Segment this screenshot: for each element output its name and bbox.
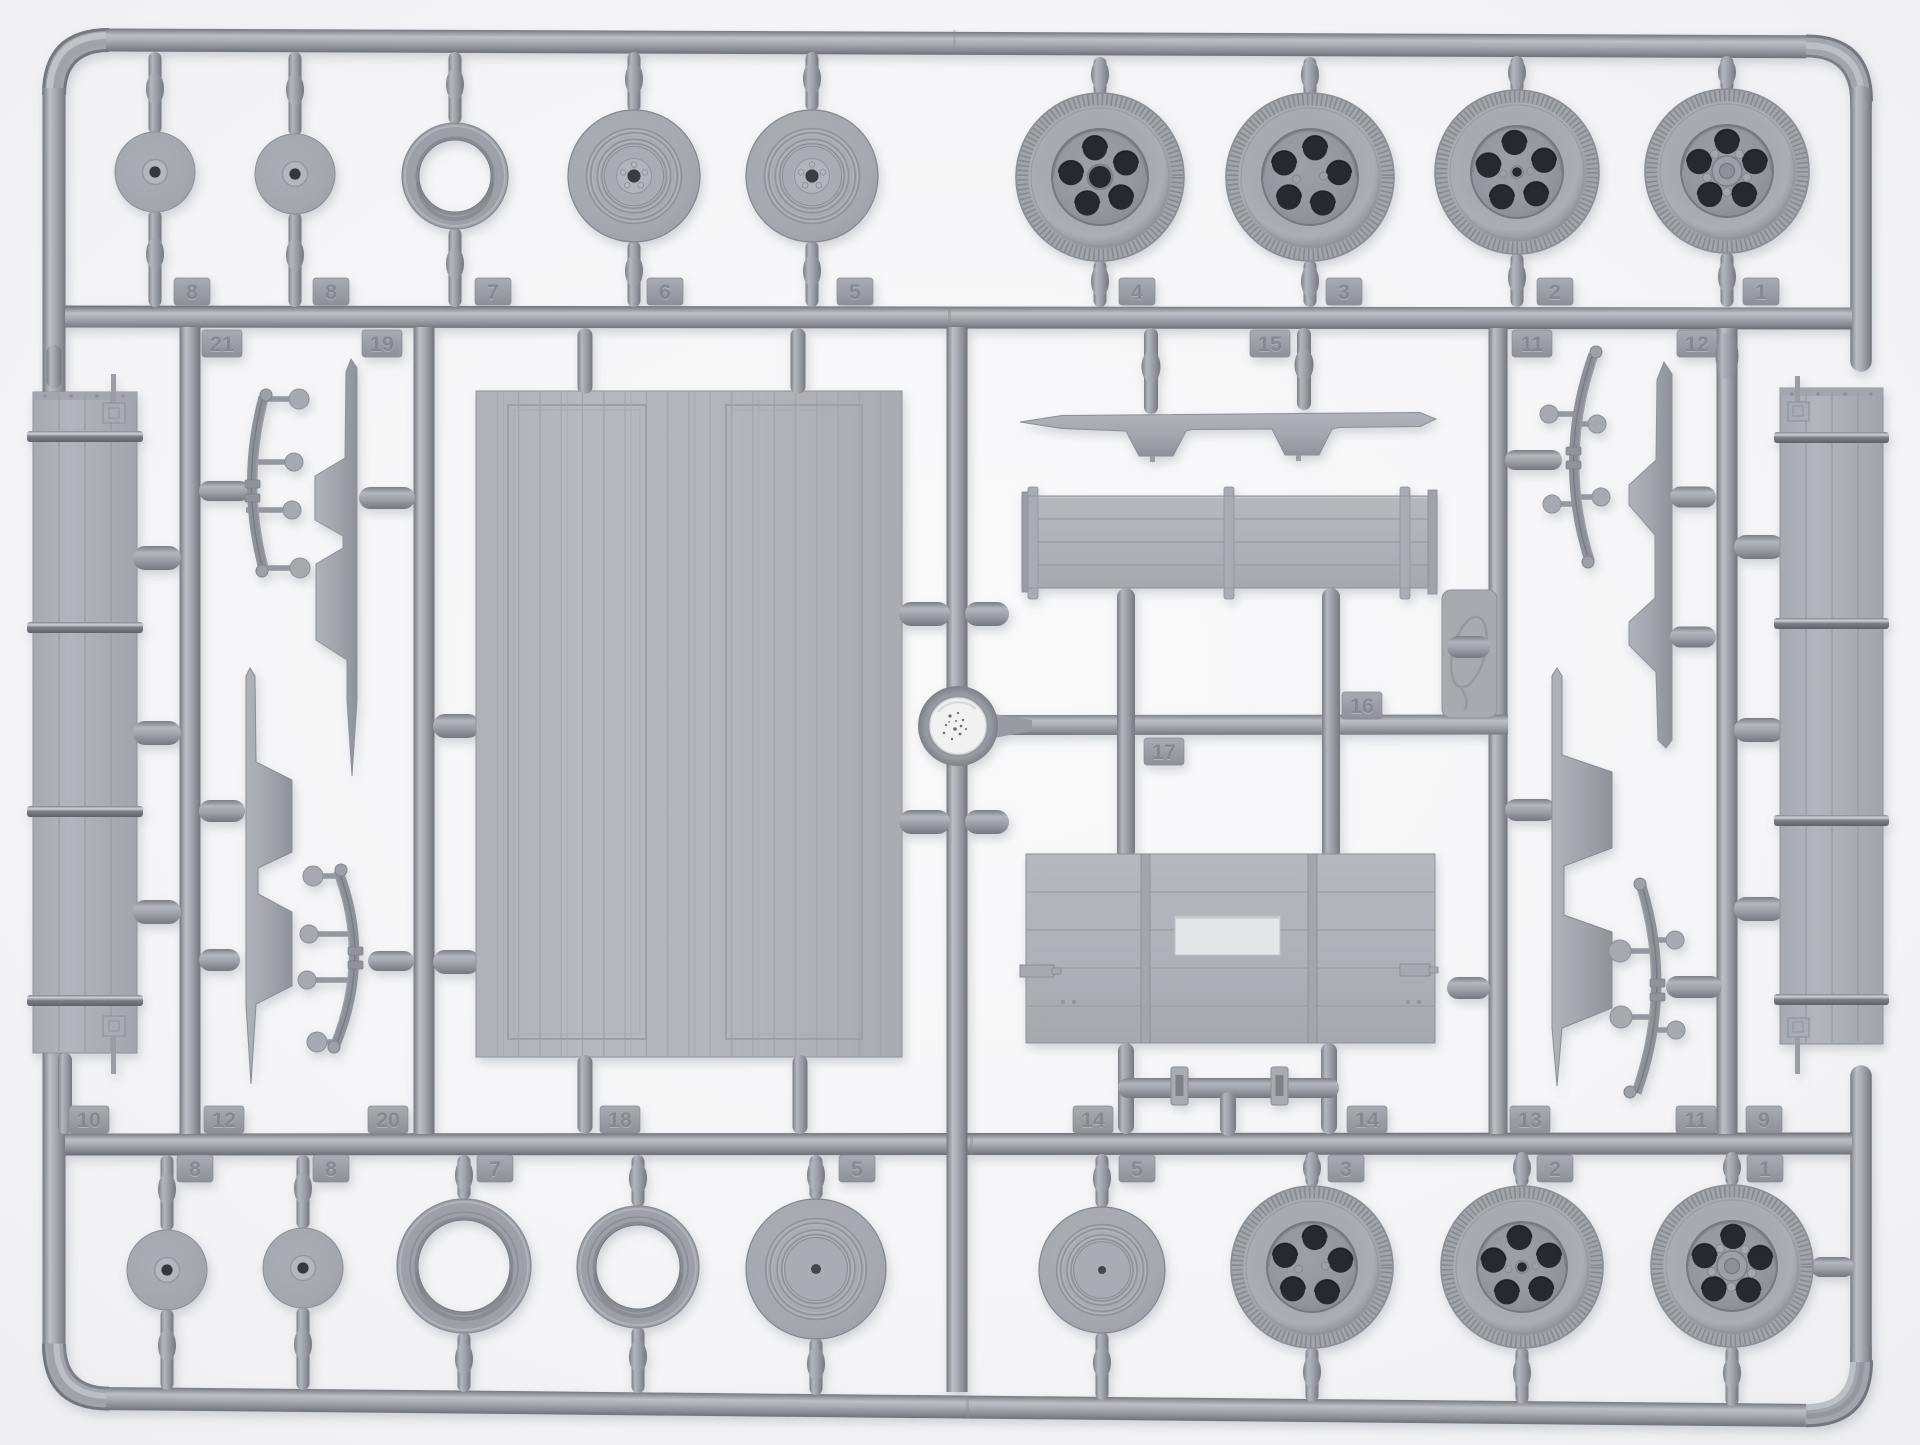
svg-text:5: 5 [1131,1157,1143,1181]
svg-text:2: 2 [1549,280,1561,304]
svg-text:5: 5 [849,280,861,304]
svg-text:12: 12 [1685,332,1709,356]
svg-text:7: 7 [489,1157,501,1181]
svg-text:1: 1 [1755,280,1767,304]
svg-text:8: 8 [325,280,337,304]
svg-text:15: 15 [1258,332,1282,356]
svg-text:16: 16 [1350,694,1374,718]
svg-text:18: 18 [608,1108,632,1132]
svg-text:4: 4 [1131,280,1143,304]
svg-text:11: 11 [1685,1108,1708,1132]
svg-text:13: 13 [1518,1108,1542,1132]
svg-text:2: 2 [1549,1157,1561,1181]
svg-text:3: 3 [1338,280,1350,304]
svg-text:11: 11 [1521,332,1544,356]
svg-text:14: 14 [1081,1108,1105,1132]
svg-text:10: 10 [77,1108,101,1132]
svg-text:8: 8 [189,1157,201,1181]
svg-text:1: 1 [1759,1157,1771,1181]
svg-text:14: 14 [1355,1108,1379,1132]
svg-text:19: 19 [370,332,394,356]
svg-text:17: 17 [1152,740,1176,764]
svg-text:8: 8 [186,280,198,304]
svg-text:20: 20 [376,1108,400,1132]
svg-text:12: 12 [212,1108,236,1132]
svg-text:3: 3 [1340,1157,1352,1181]
svg-text:21: 21 [210,332,234,356]
svg-text:9: 9 [1758,1108,1770,1132]
svg-text:6: 6 [659,280,671,304]
svg-text:7: 7 [487,280,499,304]
svg-text:8: 8 [325,1157,337,1181]
svg-text:5: 5 [851,1157,863,1181]
